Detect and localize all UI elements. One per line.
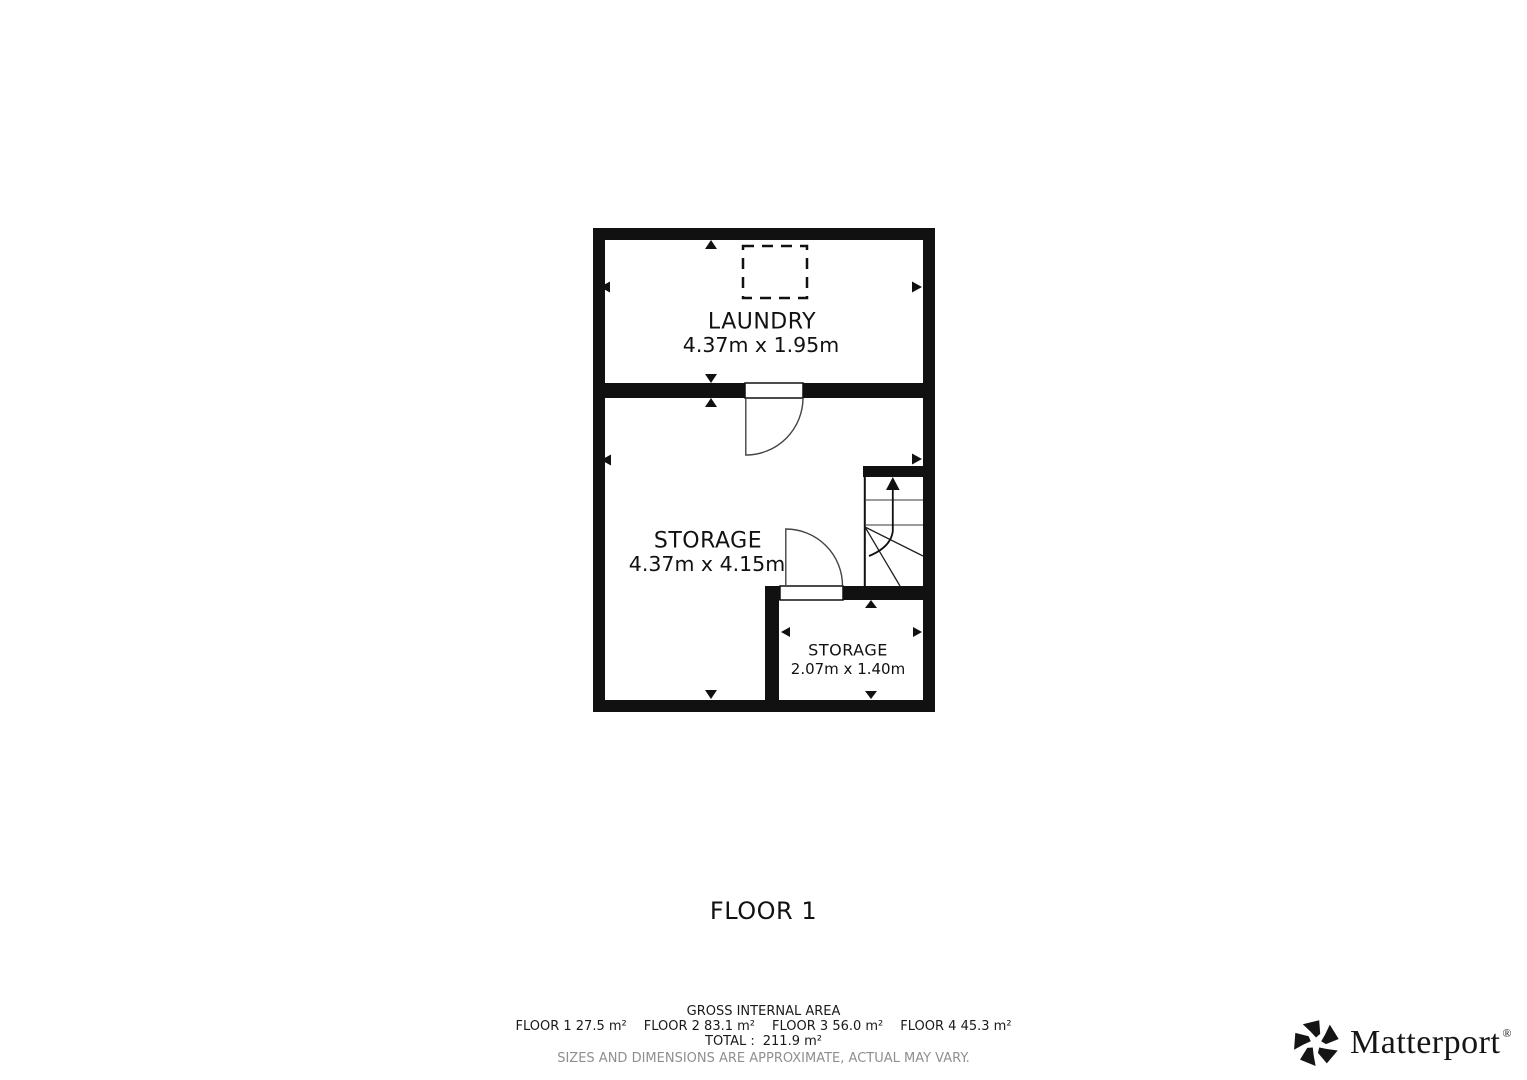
matterport-logo-icon — [1291, 1018, 1341, 1068]
stairs-up-arrow-icon — [886, 477, 900, 490]
registered-trademark-symbol: ® — [1502, 1026, 1511, 1041]
laundry-room-dimensions: 4.37m x 1.95m — [683, 333, 839, 357]
total-value: 211.9 m² — [763, 1034, 822, 1049]
matterport-wordmark: Matterport — [1350, 1024, 1500, 1062]
door-laundry-swing-icon — [745, 383, 803, 455]
appliance-dashed-box — [743, 246, 807, 298]
small-storage-room-label: STORAGE — [808, 641, 888, 660]
storage-room-label: STORAGE — [654, 529, 762, 554]
floorplan-page: LAUNDRY 4.37m x 1.95m STORAGE 4.37m x 4.… — [0, 0, 1527, 1080]
laundry-room-label: LAUNDRY — [708, 310, 816, 335]
storage-room-dimensions: 4.37m x 4.15m — [629, 552, 785, 576]
floor-title: FLOOR 1 — [0, 897, 1527, 925]
matterport-branding: Matterport ® — [1291, 1018, 1512, 1068]
gross-internal-area-heading: GROSS INTERNAL AREA — [0, 1004, 1527, 1019]
floor-2-area: FLOOR 2 83.1 m² — [644, 1019, 755, 1034]
total-label: TOTAL : — [705, 1034, 755, 1049]
door-storage-swing-icon — [780, 529, 843, 600]
stairs-icon — [865, 477, 923, 586]
small-storage-room-dimensions: 2.07m x 1.40m — [791, 660, 905, 678]
floor-1-area: FLOOR 1 27.5 m² — [515, 1019, 626, 1034]
floor-3-area: FLOOR 3 56.0 m² — [772, 1019, 883, 1034]
floor-4-area: FLOOR 4 45.3 m² — [900, 1019, 1011, 1034]
